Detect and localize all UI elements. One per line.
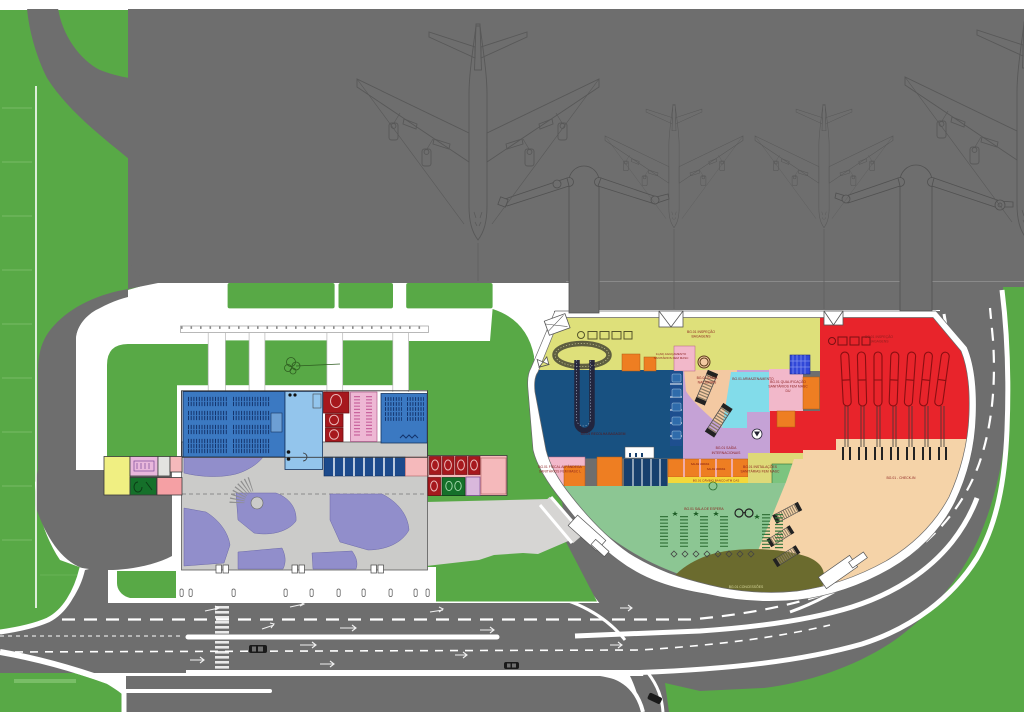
svg-text:BG.01 QUALIFICAÇÃO: BG.01 QUALIFICAÇÃO xyxy=(770,379,806,384)
svg-text:BG.04 RECOLHA BAGAGEM: BG.04 RECOLHA BAGAGEM xyxy=(581,432,626,436)
svg-text:BAGAGENS: BAGAGENS xyxy=(691,335,711,339)
svg-text:BG.01 CÂMBIO BANCO ATM CAS: BG.01 CÂMBIO BANCO ATM CAS xyxy=(693,478,739,483)
svg-text:BG.01 CONCESSÕES: BG.01 CONCESSÕES xyxy=(729,584,764,589)
svg-text:BG.01 - CHECK-IN: BG.01 - CHECK-IN xyxy=(886,476,916,480)
svg-text:BG.01 ARMAZENAMENTO: BG.01 ARMAZENAMENTO xyxy=(732,377,774,381)
svg-text:BG.01 INSTALAÇÕES: BG.01 INSTALAÇÕES xyxy=(743,464,778,469)
svg-text:SANITÁRIOS FEM MASC: SANITÁRIOS FEM MASC xyxy=(768,385,808,389)
svg-text:INTERNACIONAIS: INTERNACIONAIS xyxy=(712,451,742,455)
svg-text:BAGAGENS: BAGAGENS xyxy=(869,340,889,344)
svg-text:NACIONAIS: NACIONAIS xyxy=(698,381,717,385)
svg-text:BG.01 SAÍDA: BG.01 SAÍDA xyxy=(716,446,737,450)
svg-text:BG.01 SAÍDA: BG.01 SAÍDA xyxy=(697,376,718,380)
svg-text:SALAS VARIAS: SALAS VARIAS xyxy=(707,467,726,471)
svg-text:SANITÁRIAS FEM MASC: SANITÁRIAS FEM MASC xyxy=(741,470,781,474)
svg-text:BG.01 FISCAL ALFÂNDEGA: BG.01 FISCAL ALFÂNDEGA xyxy=(538,465,582,469)
svg-text:SALAS VARIAS: SALAS VARIAS xyxy=(691,462,710,466)
svg-text:BG.01 SALA DE ESPERA: BG.01 SALA DE ESPERA xyxy=(684,507,724,511)
svg-text:BG.01 INSPEÇÃO: BG.01 INSPEÇÃO xyxy=(865,334,893,339)
svg-text:SANITÁRIOS FEM MASC L: SANITÁRIOS FEM MASC L xyxy=(539,470,581,474)
svg-text:DU: DU xyxy=(786,389,791,393)
svg-text:SANITÁRIOS FEM MASC: SANITÁRIOS FEM MASC xyxy=(654,356,690,360)
svg-text:BG.01 INSPEÇÃO: BG.01 INSPEÇÃO xyxy=(687,329,715,334)
